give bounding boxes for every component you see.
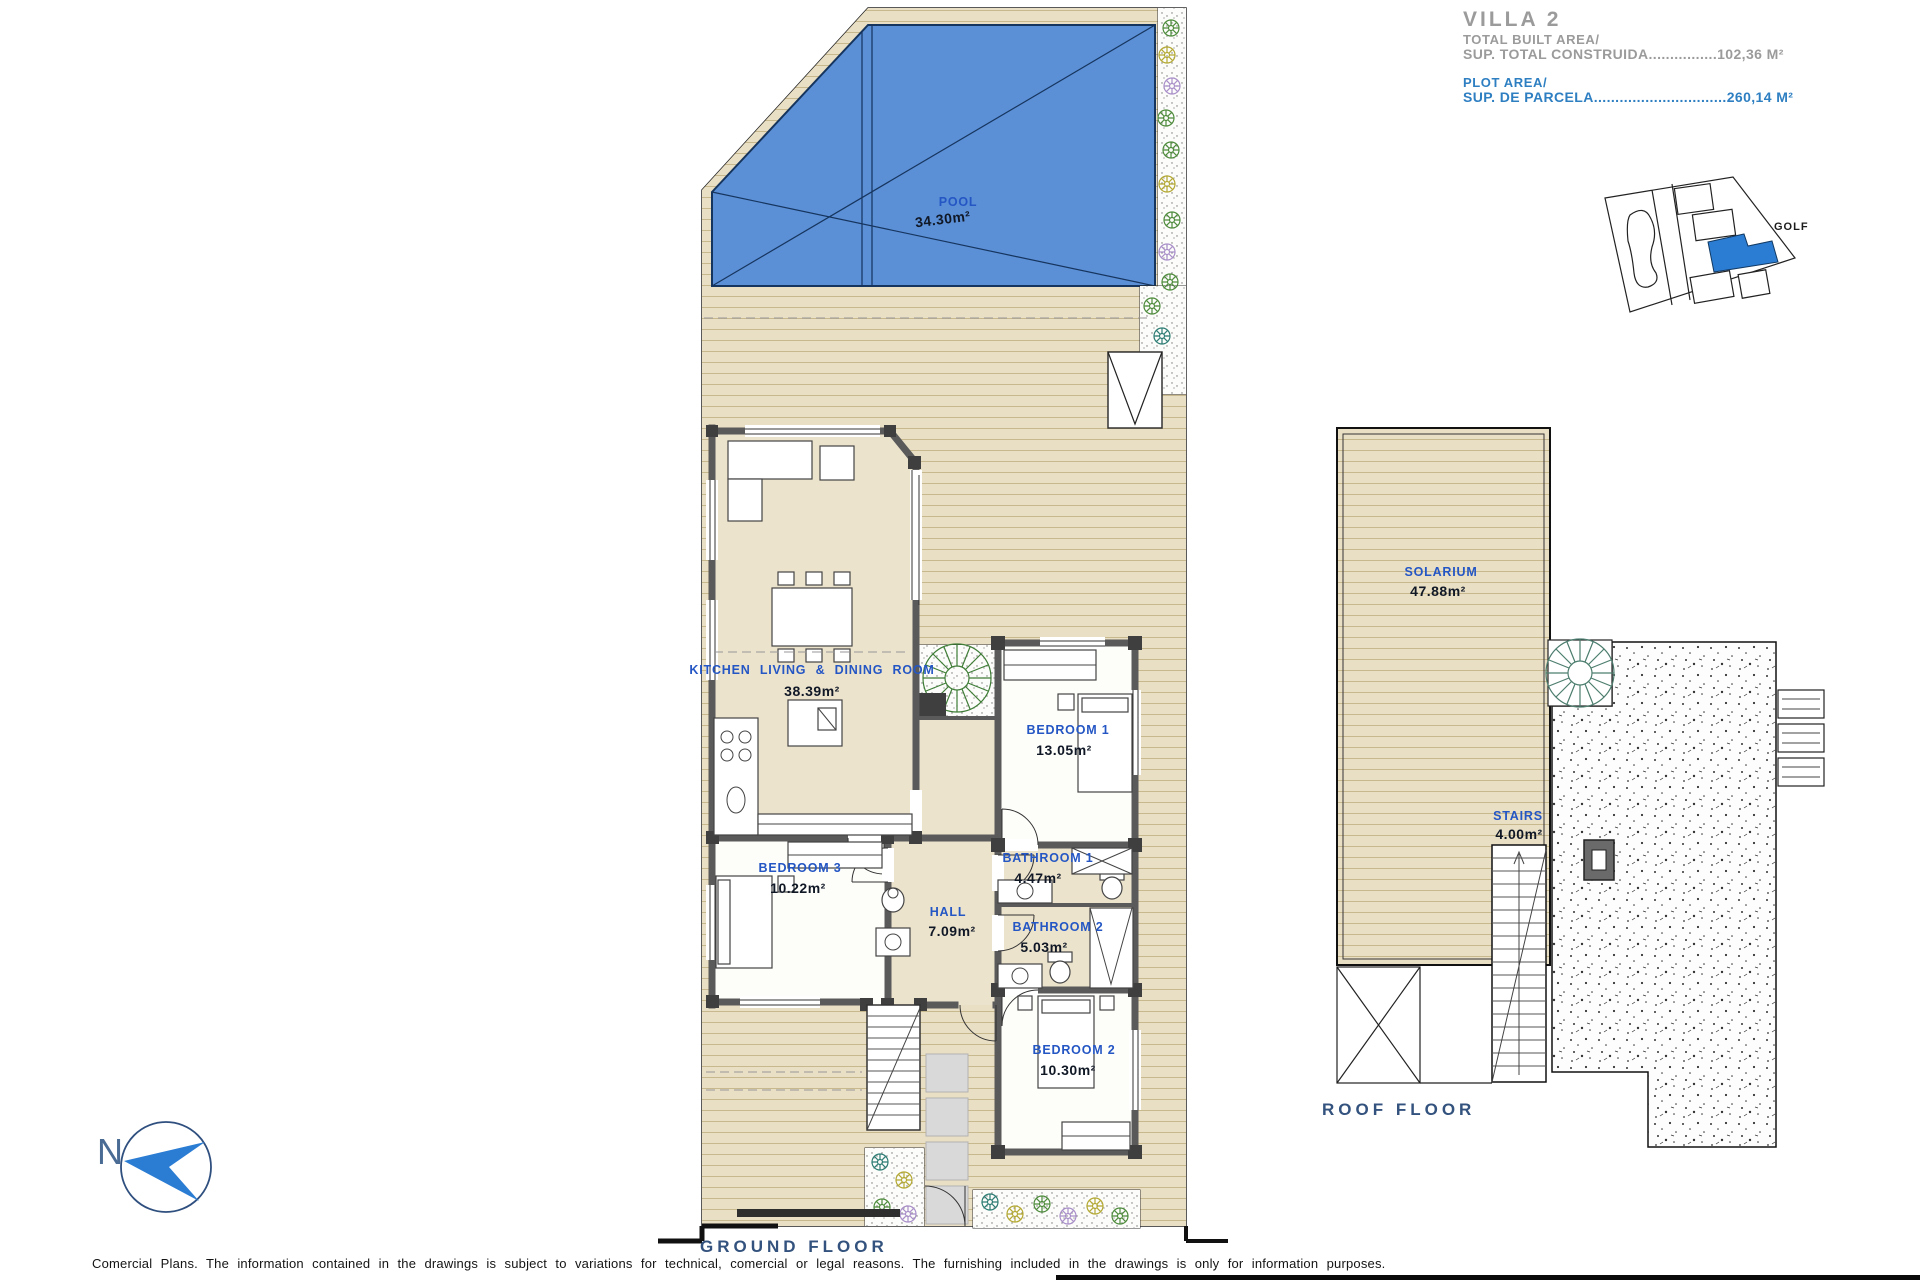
pool-label: POOL [939,196,978,210]
bathroom-2-area: 5.03m² [1020,940,1067,955]
fence [737,1209,900,1217]
roof-floor-plan [1337,428,1824,1147]
bedroom-2-label: BEDROOM 2 [1033,1044,1116,1058]
patio-tree [916,644,998,718]
hall-label: HALL [930,906,967,920]
ground-stairs [867,1005,920,1130]
porch-roof-x [1337,967,1492,1083]
ac-units [1778,690,1824,786]
roof-floor-title: ROOF FLOOR [1322,1101,1475,1120]
floorplan-sheet: VILLA 2 TOTAL BUILT AREA/ SUP. TOTAL CON… [0,0,1920,1280]
bathroom-1-label: BATHROOM 1 [1002,852,1093,866]
chimney [1584,840,1614,880]
solarium-label: SOLARIUM [1404,566,1477,580]
pergola-tree [1546,639,1614,707]
living-room-area: 38.39m² [784,684,840,699]
site-key-map [1605,177,1795,312]
bedroom-3-area: 10.22m² [770,881,826,896]
bathroom-2-label: BATHROOM 2 [1012,921,1103,935]
sheet-edge-bar [1056,1275,1920,1280]
hall [888,838,998,1005]
ground-floor-title: GROUND FLOOR [700,1238,888,1257]
plot-corner-mark-right [1186,1226,1228,1241]
corridor [916,718,998,838]
ground-floor-plan [658,8,1228,1241]
bathroom-1-area: 4.47m² [1014,871,1061,886]
golf-label: GOLF [1774,221,1809,233]
disclaimer-text: Comercial Plans. The information contain… [92,1257,1385,1271]
bedroom-1-label: BEDROOM 1 [1027,724,1110,738]
swimming-pool [712,25,1155,286]
north-arrow-pointer [124,1142,205,1201]
stairs-label: STAIRS [1493,810,1543,824]
solarium-area: 47.88m² [1410,584,1466,599]
roof-gravel [1552,642,1776,1147]
stairs-area: 4.00m² [1495,827,1542,842]
living-room-label: KITCHEN LIVING & DINING ROOM [689,664,934,678]
total-built-area-value: SUP. TOTAL CONSTRUIDA................102… [1463,47,1784,62]
villa-title: VILLA 2 [1463,8,1561,31]
gate [1108,352,1162,428]
floorplan-drawing [0,0,1920,1280]
north-arrow [121,1122,211,1212]
bedroom-2-area: 10.30m² [1040,1063,1096,1078]
bedroom-1-area: 13.05m² [1036,743,1092,758]
bedroom-3-label: BEDROOM 3 [759,862,842,876]
roof-stairs [1492,845,1546,1082]
plot-area-value: SUP. DE PARCELA.........................… [1463,90,1793,105]
north-label: N [97,1132,123,1172]
hall-area: 7.09m² [928,924,975,939]
